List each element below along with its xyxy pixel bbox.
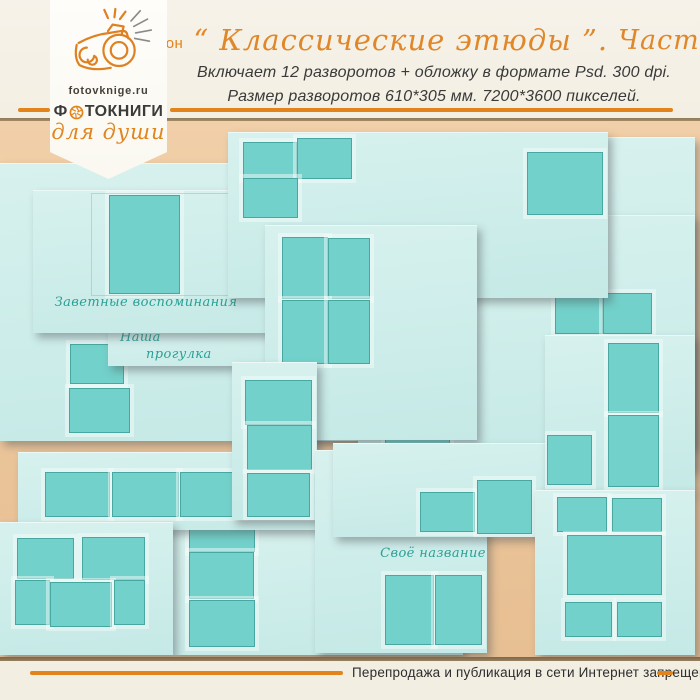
photo-placeholder bbox=[282, 300, 328, 364]
photo-placeholder bbox=[50, 582, 112, 627]
photo-placeholder bbox=[82, 537, 145, 580]
photo-placeholder bbox=[189, 552, 254, 599]
photo-placeholder bbox=[297, 138, 352, 179]
title-script: “ Классические этюды ”. bbox=[193, 23, 608, 57]
subtitle-line1: Включает 12 разворотов + обложку в форма… bbox=[172, 64, 696, 82]
photo-placeholder bbox=[112, 472, 179, 517]
footer-dash-right bbox=[657, 671, 673, 675]
photobook-spread-mid-bottom bbox=[333, 443, 545, 537]
photo-placeholder bbox=[420, 492, 475, 532]
photo-placeholder bbox=[565, 602, 612, 637]
photo-placeholder bbox=[69, 388, 130, 433]
photobook-spread-col3-mid bbox=[232, 362, 317, 520]
photobook-spread-bottom-right-cover bbox=[535, 490, 695, 655]
photo-placeholder bbox=[557, 497, 607, 532]
spread-caption: Своё название bbox=[333, 546, 487, 563]
photo-placeholder bbox=[567, 535, 662, 595]
title-part: Часть 3 bbox=[618, 25, 700, 56]
photo-placeholder bbox=[45, 472, 110, 517]
photo-placeholder bbox=[608, 415, 659, 487]
page-title: Шаблон “ Классические этюды ”. Часть 3 bbox=[172, 16, 696, 64]
photo-placeholder bbox=[15, 580, 50, 625]
photo-placeholder bbox=[189, 528, 255, 552]
photo-placeholder bbox=[109, 195, 180, 294]
brand-rest: ТОКНИГИ bbox=[85, 103, 164, 121]
photo-placeholder bbox=[328, 300, 370, 364]
photo-placeholder bbox=[603, 293, 652, 334]
photobook-spread-bottom-left bbox=[0, 522, 173, 655]
photo-placeholder bbox=[385, 575, 434, 645]
photo-placeholder bbox=[17, 538, 74, 579]
photo-placeholder bbox=[527, 152, 603, 215]
photo-placeholder bbox=[608, 343, 659, 413]
promo-poster: НашапрогулкаЗаветные воспоминанияСвоё на… bbox=[0, 0, 700, 700]
spread-caption: Заветные воспоминания bbox=[33, 295, 259, 312]
photobook-spread-col2-right bbox=[545, 335, 695, 493]
site-url: fotovknige.ru bbox=[50, 85, 167, 97]
photo-placeholder bbox=[247, 473, 310, 517]
header-rule-left bbox=[18, 108, 50, 112]
header-rule-right bbox=[170, 108, 673, 112]
subtitle-line2: Размер разворотов 610*305 мм. 7200*3600 … bbox=[172, 88, 696, 106]
photo-placeholder bbox=[114, 580, 145, 625]
photo-placeholder bbox=[617, 602, 662, 637]
brand-tagline: для души bbox=[50, 120, 167, 144]
photo-placeholder bbox=[245, 380, 312, 425]
photo-placeholder bbox=[189, 600, 255, 647]
brand-first-letter: Ф bbox=[54, 103, 68, 121]
photo-placeholder bbox=[547, 435, 592, 485]
photo-placeholder bbox=[282, 237, 328, 299]
spread-caption: Нашапрогулка bbox=[120, 330, 212, 364]
photo-placeholder bbox=[612, 498, 662, 532]
logo-badge: fotovknige.ru Ф ТОКНИГИ для души bbox=[50, 0, 167, 179]
footer-line-left bbox=[30, 671, 343, 675]
photo-placeholder bbox=[243, 178, 298, 218]
photo-placeholder bbox=[435, 575, 482, 645]
camera-doodle-icon bbox=[62, 5, 154, 81]
aperture-o-icon bbox=[69, 105, 84, 120]
brand-name: Ф ТОКНИГИ bbox=[50, 103, 167, 121]
photo-placeholder bbox=[328, 238, 370, 299]
photo-placeholder bbox=[555, 293, 603, 334]
photo-placeholder bbox=[247, 425, 312, 470]
photo-placeholder bbox=[477, 480, 532, 534]
photo-placeholder bbox=[243, 142, 297, 179]
footer-notice: Перепродажа и публикация в сети Интернет… bbox=[352, 665, 700, 680]
